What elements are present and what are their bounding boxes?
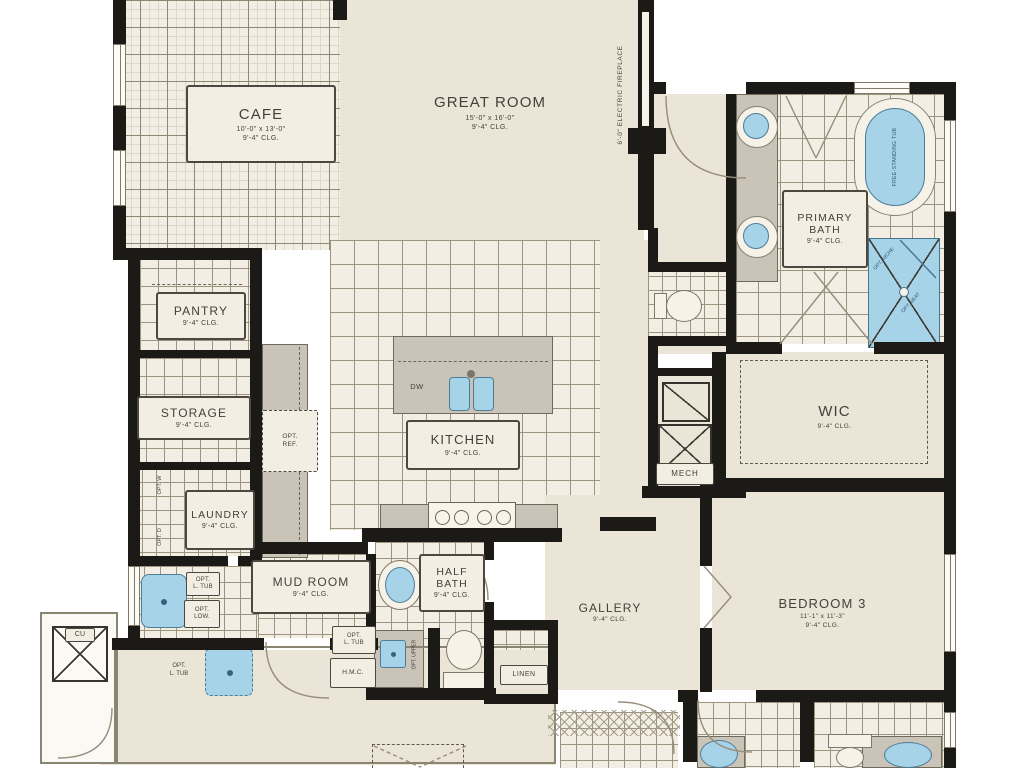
drain [227,670,233,676]
mech-equipment-box-1 [662,382,710,422]
room-ceiling: 9'-4" CLG. [806,622,840,631]
wall [700,628,712,692]
wall [113,206,126,250]
utility-sink [380,640,406,668]
opt-door-lattice [548,710,680,736]
room-label-great-room: GREAT ROOM 15'-0" x 16'-0" 9'-4" CLG. [415,84,565,142]
room-name: KITCHEN [431,432,496,449]
room-dims: 15'-0" x 16'-0" [465,114,514,123]
wall [756,690,808,702]
room-ceiling: 9'-4" CLG. [472,123,508,132]
label-line: OPT. [282,433,297,441]
room-dims: 11'-1" x 11'-3" [800,613,845,622]
label-line: LOW. [194,614,210,622]
wall [600,517,656,531]
label-opt-low: OPT. LOW. [184,600,220,628]
room-name: LINEN [512,671,535,680]
label-line: OPT. [172,663,185,671]
wall [648,346,658,370]
toilet-tank [828,734,872,748]
room-ceiling: 9'-4" CLG. [202,522,238,531]
fireplace-inset [642,12,649,126]
label-line: L. TUB [170,671,189,679]
island-overhang-dashed-line [398,361,548,363]
room-dims: 10'-0" x 13'-0" [236,125,285,134]
room-ceiling: 9'-4" CLG. [434,591,470,600]
room-label-kitchen: KITCHEN 9'-4" CLG. [406,420,520,470]
bath2-sink-left [700,740,738,768]
wall [250,542,368,554]
room-label-mud-room: MUD ROOM 9'-4" CLG. [251,560,371,614]
bath2-toilet [828,734,872,768]
primary-sink-1 [736,106,778,148]
room-name: MECH [671,469,699,479]
wall [128,350,250,358]
room-name: BEDROOM 3 [779,595,867,613]
half-bath-sink [378,560,422,610]
half-bath-toilet [443,630,487,690]
wall [113,106,126,150]
room-ceiling: 9'-4" CLG. [807,237,843,246]
hall-floor [600,240,648,520]
wall [712,478,944,492]
wall [548,620,558,704]
room-ceiling: 9'-4" CLG. [183,319,219,328]
toilet-bowl [666,290,702,322]
window [113,44,126,106]
label-line: REF. [283,441,298,449]
room-name: CU [75,631,86,640]
room-label-gallery: GALLERY 9'-4" CLG. [556,594,664,630]
room-name: LAUNDRY [191,509,249,523]
sink-basin [743,223,769,249]
room-label-pantry: PANTRY 9'-4" CLG. [156,292,246,340]
room-ceiling: 9'-4" CLG. [243,134,279,143]
opt-laundry-tub-garage [205,648,253,696]
window [854,82,910,94]
room-label-wic: WIC 9'-4" CLG. [792,396,877,438]
wall [944,82,956,120]
floor-plan: FREE-STANDING TUB [0,0,1024,768]
room-label-mech: MECH [656,463,714,485]
label-opt-refrigerator: OPT. REF. [262,410,318,472]
wall [944,212,956,554]
window [113,150,126,206]
sink-basin [385,567,415,603]
room-label-linen: LINEN [500,665,548,685]
room-label-storage: STORAGE 9'-4" CLG. [137,396,251,440]
wall [944,748,956,768]
room-label-bedroom-3: BEDROOM 3 11'-1" x 11'-3" 9'-4" CLG. [760,586,885,640]
window [128,566,140,626]
wall [800,702,814,762]
label-opt-dryer: OPT. D [155,515,165,559]
label-line: L. TUB [344,640,364,648]
room-ceiling: 9'-4" CLG. [445,449,481,458]
label-opt-laundry-tub-mud: OPT. L. TUB [332,626,376,654]
sink-bowl-left [449,377,470,411]
wall [362,528,562,542]
room-label-cafe: CAFE 10'-0" x 13'-0" 9'-4" CLG. [186,85,336,163]
sink-bowl-right [473,377,494,411]
wall [712,352,726,488]
wall [874,342,944,354]
wall [484,542,494,560]
room-label-primary-bath: PRIMARY BATH 9'-4" CLG. [782,190,868,268]
wall [806,690,944,702]
label-line: OPT. [196,577,210,585]
room-ceiling: 9'-4" CLG. [818,423,852,432]
label-opt-laundry-tub: OPT. L. TUB [186,572,220,596]
window [944,120,956,212]
tub-label: FREE-STANDING TUB [889,107,901,207]
room-name: WIC [818,402,850,422]
burner [435,510,450,525]
wall [428,628,440,690]
room-name: GALLERY [579,600,642,616]
kitchen-sink [449,370,495,412]
wall [648,336,728,346]
room-label-half-bath: HALF BATH 9'-4" CLG. [419,554,485,612]
room-name: HALF BATH [421,566,483,590]
toilet-bowl [446,630,482,670]
wall [678,690,698,702]
burner [496,510,511,525]
wall [726,94,736,354]
window [944,554,956,652]
room-name: GREAT ROOM [434,93,546,113]
wall [628,128,666,154]
shower [868,238,940,348]
wall [683,702,697,762]
toilet-bowl [836,747,864,768]
wall [113,248,260,260]
label-line: DW [410,382,424,392]
primary-sink-2 [736,216,778,258]
room-ceiling: 9'-4" CLG. [593,616,627,625]
wall [128,462,250,470]
burner [454,510,469,525]
label-opt-laundry-tub-garage: OPT. L. TUB [153,656,205,686]
room-ceiling: 9'-4" CLG. [176,421,212,430]
wall [333,0,347,20]
label-line: OPT. [195,607,209,615]
room-name: STORAGE [161,406,227,422]
primary-toilet [654,288,708,324]
wall [128,626,140,640]
label-cu: CU [65,628,95,642]
label-line: L. TUB [193,584,213,592]
wall [366,688,496,700]
room-name: PRIMARY BATH [784,212,866,237]
room-label-laundry: LAUNDRY 9'-4" CLG. [185,490,255,550]
sink-basin [743,113,769,139]
wall [484,620,558,630]
drain [161,599,167,605]
bath2-sink-right [884,742,932,768]
pantry-shelf-dashed [152,284,242,286]
wall [746,82,854,94]
wall [128,556,228,566]
shower-drain [899,287,909,297]
label-opt-washer: OPT. W [155,463,165,507]
wall [700,478,712,566]
room-name: MUD ROOM [273,575,350,591]
room-name: CAFE [239,105,283,125]
wall [648,262,728,272]
label-dishwasher: DW [404,381,430,394]
label-electric-fireplace: 6'-0" ELECTRIC FIREPLACE [613,15,627,175]
burner [477,510,492,525]
window [944,712,956,748]
room-ceiling: 9'-4" CLG. [293,590,329,599]
wall [736,342,782,354]
garage-attic-access-dashed [372,744,464,768]
wall [113,0,126,44]
wall [944,652,956,712]
label-opt-upper: OPT. UPPER [410,629,419,681]
label-line: H.M.C. [342,669,363,677]
room-name: PANTRY [174,304,228,320]
label-hmc: H.M.C. [330,658,376,688]
wall [654,82,666,94]
drain [391,652,396,657]
laundry-tub [141,574,187,628]
label-line: OPT. [347,633,361,641]
